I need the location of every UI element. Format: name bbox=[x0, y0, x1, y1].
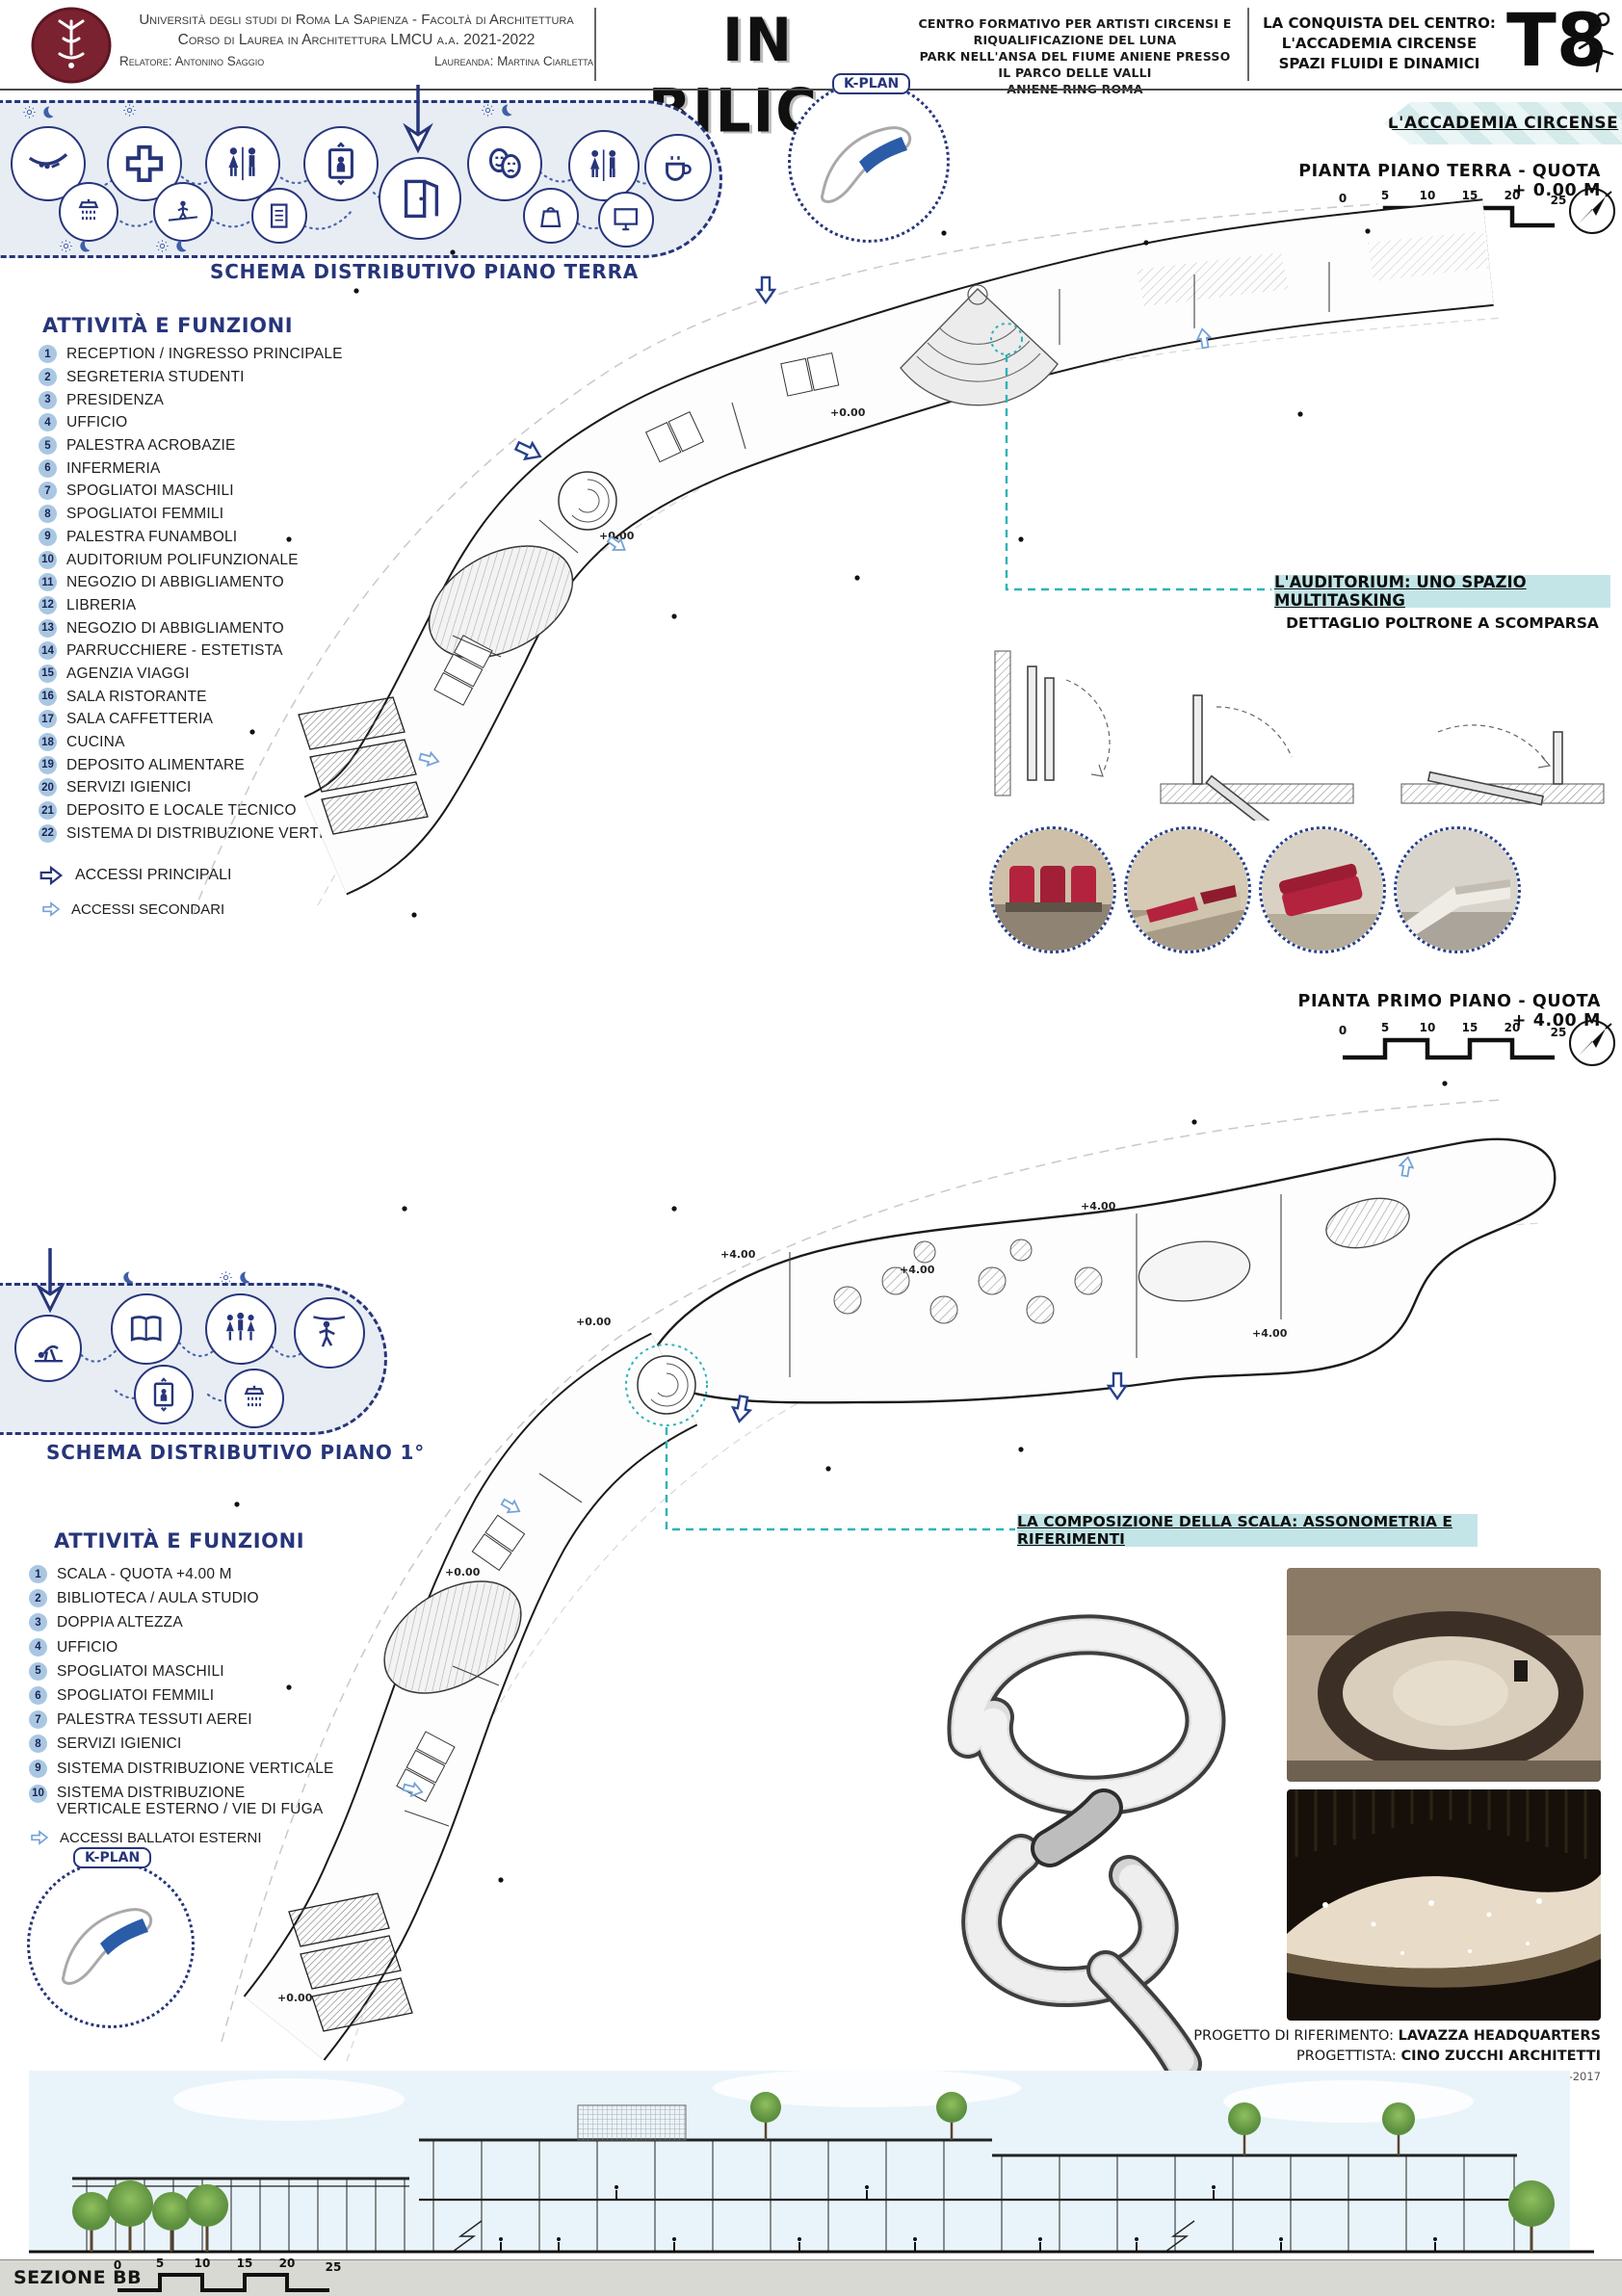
auditorium-leader-line bbox=[1007, 354, 1271, 589]
main-entry-arrow-icon bbox=[513, 438, 543, 464]
sun-icon bbox=[21, 104, 38, 120]
day-night-icons bbox=[21, 104, 56, 120]
scale-bar-sezione: 0 5 10 15 20 25 bbox=[114, 2256, 341, 2296]
legend-item: 7PALESTRA TESSUTI AEREI bbox=[29, 1708, 347, 1732]
accessi-ballatoi-row: ACCESSI BALLATOI ESTERNI bbox=[27, 1828, 262, 1847]
moon-icon bbox=[119, 1269, 136, 1286]
project-description: CENTRO FORMATIVO PER ARTISTI CIRCENSI E … bbox=[911, 15, 1239, 97]
entry-arrow-icon bbox=[31, 1246, 69, 1316]
svg-text:+0.00: +0.00 bbox=[277, 1992, 313, 2004]
section-drawing bbox=[0, 2061, 1622, 2259]
legend-item-label: PALESTRA TESSUTI AEREI bbox=[57, 1711, 252, 1728]
svg-text:+4.00: +4.00 bbox=[900, 1264, 935, 1276]
seat-photo-4 bbox=[1394, 826, 1521, 953]
seat-photo-1 bbox=[989, 826, 1116, 953]
svg-text:0: 0 bbox=[114, 2258, 121, 2272]
stair-reference-photo bbox=[1287, 1568, 1601, 1782]
relatore-line: Relatore: Antonino Saggio bbox=[119, 54, 264, 68]
item-number-badge: 8 bbox=[29, 1735, 47, 1753]
svg-text:+4.00: +4.00 bbox=[1252, 1327, 1288, 1340]
key-plan-shape bbox=[50, 1893, 166, 1999]
seat-photo-3 bbox=[1259, 826, 1386, 953]
svg-text:+0.00: +0.00 bbox=[576, 1316, 612, 1328]
item-number-badge: 10 bbox=[29, 1785, 47, 1803]
elevator-icon bbox=[134, 1365, 194, 1424]
shower-icon bbox=[224, 1369, 284, 1428]
attivita-piano1-list: 1SCALA - QUOTA +4.00 M 2BIBLIOTECA / AUL… bbox=[29, 1562, 347, 1827]
description-line2: PARK NELL'ANSA DEL FIUME ANIENE PRESSO I… bbox=[911, 48, 1239, 81]
auditorium-title: L'AUDITORIUM: UNO SPAZIO MULTITASKING bbox=[1274, 573, 1610, 610]
entry-arrow-icon bbox=[399, 83, 437, 156]
key-plan-label: K-PLAN bbox=[832, 73, 910, 94]
moon-icon bbox=[39, 104, 56, 120]
university-line1: Università degli studi di Roma La Sapien… bbox=[119, 12, 593, 28]
floor-acrobat-icon bbox=[14, 1315, 82, 1382]
svg-text:+0.00: +0.00 bbox=[445, 1566, 481, 1578]
spiral-stair bbox=[638, 1356, 695, 1414]
building-blob bbox=[643, 1139, 1555, 1402]
reference-value: LAVAZZA HEADQUARTERS bbox=[1399, 2028, 1601, 2044]
university-line2: Corso di Laurea in Architettura LMCU a.a… bbox=[119, 32, 593, 49]
legend-item: 3DOPPIA ALTEZZA bbox=[29, 1610, 347, 1634]
sun-icon bbox=[480, 102, 496, 118]
legend-item: 9SISTEMA DISTRIBUZIONE VERTICALE bbox=[29, 1757, 347, 1781]
seat-photo-2 bbox=[1124, 826, 1251, 953]
project-line3: SPAZI FLUIDI E DINAMICI bbox=[1258, 54, 1501, 74]
quota-label: +0.00 bbox=[830, 406, 866, 419]
legend-item-label: SCALA - QUOTA +4.00 M bbox=[57, 1566, 232, 1582]
accessi-ballatoi-label: ACCESSI BALLATOI ESTERNI bbox=[60, 1830, 262, 1846]
item-number-badge: 5 bbox=[29, 1662, 47, 1681]
stair-leader-line bbox=[667, 1427, 1015, 1529]
svg-text:5: 5 bbox=[1381, 1021, 1389, 1034]
attivita-piano1-heading: ATTIVITÀ E FUNZIONI bbox=[54, 1529, 304, 1552]
legend-item-label: SISTEMA DISTRIBUZIONE VERTICALE ESTERNO … bbox=[57, 1785, 327, 1817]
legend-item-label: SPOGLIATOI MASCHILI bbox=[57, 1663, 224, 1680]
svg-text:15: 15 bbox=[1462, 1021, 1478, 1034]
item-number-badge: 9 bbox=[29, 1760, 47, 1778]
legend-item: 6SPOGLIATOI FEMMILI bbox=[29, 1683, 347, 1708]
svg-text:25: 25 bbox=[326, 2260, 341, 2274]
project-line2: L'ACCADEMIA CIRCENSE bbox=[1258, 34, 1501, 54]
item-number-badge: 1 bbox=[29, 1565, 47, 1583]
item-number-badge: 6 bbox=[29, 1686, 47, 1705]
sapienza-logo bbox=[29, 6, 114, 85]
legend-item-label: SISTEMA DISTRIBUZIONE VERTICALE bbox=[57, 1761, 334, 1777]
legend-item-label: BIBLIOTECA / AULA STUDIO bbox=[57, 1590, 259, 1606]
svg-text:+4.00: +4.00 bbox=[1081, 1200, 1116, 1213]
legend-item: 5SPOGLIATOI MASCHILI bbox=[29, 1659, 347, 1683]
presentation-board: Università degli studi di Roma La Sapien… bbox=[0, 0, 1622, 2296]
legend-item-label: SPOGLIATOI FEMMILI bbox=[57, 1687, 214, 1704]
legend-item: 1SCALA - QUOTA +4.00 M bbox=[29, 1562, 347, 1586]
legend-item-label: SERVIZI IGIENICI bbox=[57, 1735, 182, 1752]
item-number-badge: 2 bbox=[29, 1589, 47, 1607]
key-plan-label: K-PLAN bbox=[73, 1847, 151, 1868]
svg-text:20: 20 bbox=[279, 2257, 296, 2270]
header-divider-2 bbox=[1247, 8, 1249, 81]
auditorium-banner: L'AUDITORIUM: UNO SPAZIO MULTITASKING bbox=[1274, 575, 1610, 608]
aerial-artist-icon bbox=[294, 1297, 365, 1369]
auditorium-subtitle: DETTAGLIO POLTRONE A SCOMPARSA bbox=[1274, 614, 1610, 632]
accademia-banner-label: L'ACCADEMIA CIRCENSE bbox=[1388, 114, 1618, 133]
svg-text:20: 20 bbox=[1504, 1021, 1521, 1034]
project-title-block: LA CONQUISTA DEL CENTRO: L'ACCADEMIA CIR… bbox=[1258, 13, 1501, 74]
svg-text:+4.00: +4.00 bbox=[720, 1248, 756, 1261]
book-icon bbox=[111, 1293, 182, 1365]
legend-item: 4UFFICIO bbox=[29, 1635, 347, 1659]
laureanda-line: Laureanda: Martina Ciarletta bbox=[434, 54, 593, 68]
schema-piano1-title: SCHEMA DISTRIBUTIVO PIANO 1° bbox=[46, 1441, 425, 1464]
sun-icon bbox=[218, 1269, 234, 1286]
scala-banner: LA COMPOSIZIONE DELLA SCALA: ASSONOMETRI… bbox=[1017, 1514, 1478, 1547]
svg-text:0: 0 bbox=[1339, 1024, 1347, 1037]
description-line1: CENTRO FORMATIVO PER ARTISTI CIRCENSI E … bbox=[911, 15, 1239, 48]
legend-item: 2BIBLIOTECA / AULA STUDIO bbox=[29, 1586, 347, 1610]
svg-text:25: 25 bbox=[1551, 1026, 1566, 1039]
day-night-icons bbox=[218, 1269, 252, 1286]
legend-item-label: DOPPIA ALTEZZA bbox=[57, 1614, 183, 1631]
family-wc-icon bbox=[205, 1293, 276, 1365]
ceiling-reference-photo bbox=[1287, 1789, 1601, 2021]
project-line1: LA CONQUISTA DEL CENTRO: bbox=[1258, 13, 1501, 34]
day-night-icons bbox=[480, 102, 514, 118]
svg-text:15: 15 bbox=[237, 2257, 253, 2270]
item-number-badge: 3 bbox=[29, 1613, 47, 1631]
stair-axonometric-render bbox=[876, 1565, 1291, 2071]
spiral-stair bbox=[559, 472, 616, 530]
svg-text:5: 5 bbox=[156, 2257, 164, 2270]
header-divider bbox=[594, 8, 596, 81]
main-entry-arrow-icon bbox=[757, 277, 774, 302]
mesh-facade bbox=[578, 2105, 686, 2140]
day-night-icons bbox=[119, 1269, 136, 1286]
key-plan-2: K-PLAN bbox=[27, 1847, 196, 2025]
sun-icon bbox=[121, 102, 138, 118]
accessi-ballatoi-arrow-icon bbox=[27, 1828, 52, 1847]
seat-detail-drawing bbox=[978, 639, 1622, 821]
moon-icon bbox=[236, 1269, 252, 1286]
university-block: Università degli studi di Roma La Sapien… bbox=[119, 12, 593, 68]
item-number-badge: 4 bbox=[29, 1638, 47, 1657]
item-number-badge: 7 bbox=[29, 1710, 47, 1729]
legend-item: 10SISTEMA DISTRIBUZIONE VERTICALE ESTERN… bbox=[29, 1781, 347, 1827]
scala-banner-label: LA COMPOSIZIONE DELLA SCALA: ASSONOMETRI… bbox=[1017, 1513, 1478, 1548]
legend-item: 8SERVIZI IGIENICI bbox=[29, 1732, 347, 1756]
svg-text:10: 10 bbox=[195, 2257, 211, 2270]
svg-text:10: 10 bbox=[1420, 1021, 1436, 1034]
legend-item-label: UFFICIO bbox=[57, 1639, 118, 1656]
accademia-banner: L'ACCADEMIA CIRCENSE bbox=[1384, 102, 1622, 144]
moon-icon bbox=[498, 102, 514, 118]
day-night-icons bbox=[121, 102, 138, 118]
acrobat-doodle-icon bbox=[1568, 8, 1618, 81]
reference-label: PROGETTO DI RIFERIMENTO: bbox=[1193, 2028, 1394, 2044]
